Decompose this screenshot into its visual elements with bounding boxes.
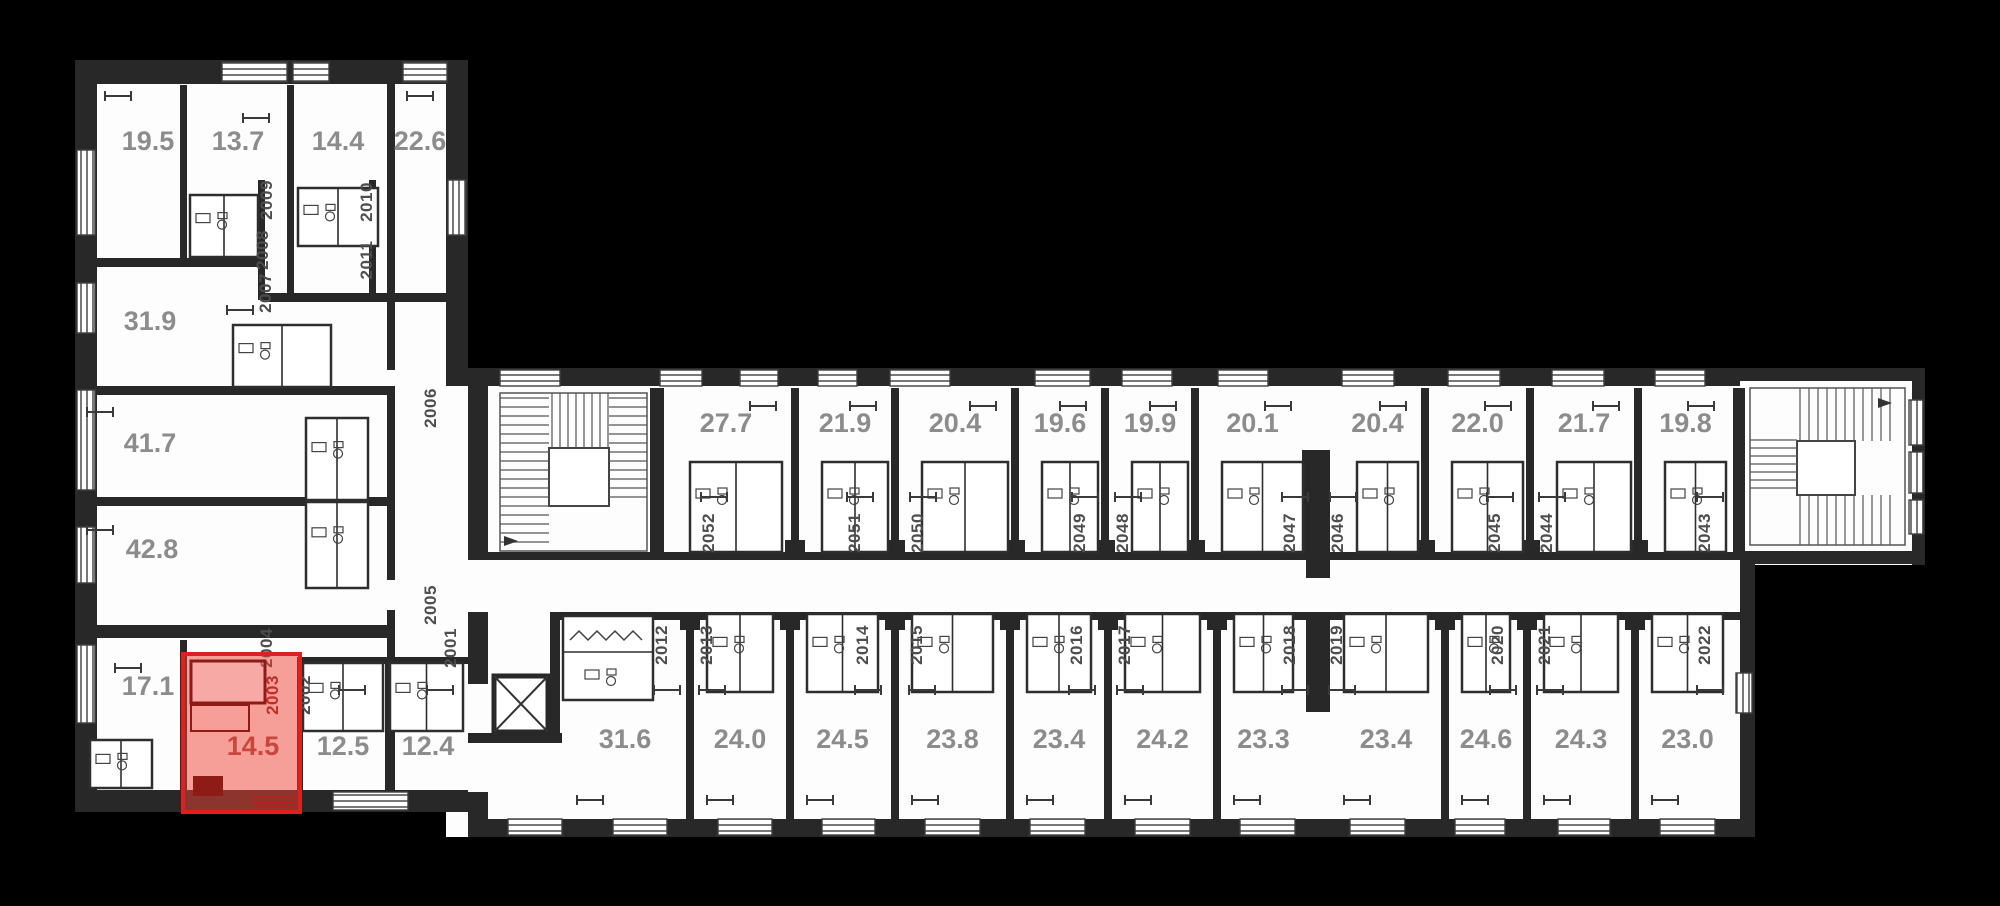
- window: [1448, 370, 1500, 386]
- window: [740, 370, 778, 386]
- elevator-icon: [494, 676, 548, 732]
- unit-number: 2047: [1280, 513, 1299, 553]
- room-area-label: 12.4: [402, 731, 455, 761]
- unit-number: 2013: [697, 625, 716, 665]
- window: [1558, 819, 1610, 835]
- window: [718, 819, 772, 835]
- window: [1660, 819, 1715, 835]
- room-area-label: 41.7: [124, 428, 177, 458]
- window: [333, 792, 408, 810]
- window: [818, 370, 857, 386]
- unit-number: 2022: [1695, 625, 1714, 665]
- window: [822, 819, 875, 835]
- unit-number: 2016: [1067, 625, 1086, 665]
- unit-number: 2011: [357, 241, 376, 280]
- unit-number: 2046: [1328, 513, 1347, 553]
- unit-number: 2051: [845, 513, 864, 553]
- room-area-label: 23.8: [926, 724, 979, 754]
- room-area-label: 19.8: [1659, 408, 1712, 438]
- room-area-label: 23.3: [1237, 724, 1290, 754]
- floor-plan-stage: 19.513.714.422.631.941.742.817.114.512.5…: [0, 0, 2000, 906]
- unit-number: 2006: [421, 388, 440, 428]
- window: [925, 819, 980, 835]
- room-area-label: 24.6: [1460, 724, 1513, 754]
- window: [508, 819, 562, 835]
- room-area-label: 17.1: [122, 671, 175, 701]
- window: [1455, 819, 1505, 835]
- room-area-label: 12.5: [317, 731, 370, 761]
- unit-number: 2050: [908, 513, 927, 553]
- unit-number: 2043: [1695, 513, 1714, 553]
- room-area-label: 19.5: [122, 126, 175, 156]
- window: [500, 370, 560, 386]
- room-area-label: 13.7: [212, 126, 265, 156]
- unit-number: 2014: [853, 625, 872, 665]
- room-area-label: 31.9: [124, 306, 177, 336]
- floor-plan: 19.513.714.422.631.941.742.817.114.512.5…: [0, 0, 2000, 906]
- window: [1218, 370, 1268, 386]
- unit-number: 2048: [1113, 513, 1132, 553]
- room-area-label: 31.6: [599, 724, 652, 754]
- window: [1342, 370, 1394, 386]
- room-area-label: 23.4: [1360, 724, 1413, 754]
- room-area-label: 19.6: [1034, 408, 1087, 438]
- window: [222, 62, 287, 82]
- window: [1909, 400, 1923, 445]
- unit-number: 2018: [1280, 625, 1299, 665]
- window: [1350, 819, 1405, 835]
- window: [1552, 370, 1604, 386]
- unit-number: 2005: [421, 585, 440, 625]
- window: [77, 283, 95, 333]
- window: [890, 370, 950, 386]
- window: [77, 645, 95, 723]
- window: [1909, 500, 1923, 534]
- room-area-label: 21.7: [1558, 408, 1611, 438]
- room-area-label: 20.4: [1351, 408, 1404, 438]
- room-area-label: 22.6: [394, 126, 447, 156]
- room-area-label: 24.0: [714, 724, 767, 754]
- room-area-label: 24.3: [1555, 724, 1608, 754]
- unit-number: 2019: [1327, 625, 1346, 665]
- main-wing-outline: [446, 368, 1740, 837]
- window: [1240, 819, 1295, 835]
- room-area-label: 20.1: [1226, 408, 1279, 438]
- room-area-label: 42.8: [126, 534, 179, 564]
- room-area-label: 27.7: [700, 408, 753, 438]
- unit-number: 2049: [1070, 513, 1089, 553]
- window: [1135, 819, 1190, 835]
- unit-number: 2001: [441, 628, 460, 668]
- window: [660, 370, 702, 386]
- unit-number: 2010: [357, 182, 376, 222]
- unit-number: 2017: [1115, 625, 1134, 665]
- unit-number: 2012: [652, 625, 671, 665]
- unit-number: 2009: [257, 180, 276, 220]
- window: [1736, 673, 1752, 713]
- highlighted-room-2003[interactable]: [183, 654, 300, 812]
- unit-number: 2052: [699, 513, 718, 553]
- window: [1909, 452, 1923, 493]
- window: [403, 62, 447, 82]
- unit-number: 2021: [1535, 625, 1554, 665]
- unit-number: 2007: [256, 273, 275, 313]
- highlight-door-block: [193, 776, 223, 796]
- room-area-label: 24.2: [1136, 724, 1189, 754]
- unit-number: 2044: [1537, 513, 1556, 553]
- window: [1035, 370, 1090, 386]
- window: [1030, 819, 1085, 835]
- unit-number: 2045: [1485, 513, 1504, 553]
- window: [77, 527, 95, 583]
- room-area-label: 22.0: [1451, 408, 1504, 438]
- window: [1655, 370, 1705, 386]
- unit-number: 2020: [1488, 625, 1507, 665]
- room-area-label: 23.4: [1033, 724, 1086, 754]
- room-area-label: 24.5: [816, 724, 869, 754]
- room-area-label: 23.0: [1661, 724, 1714, 754]
- window: [613, 819, 667, 835]
- window: [1122, 370, 1172, 386]
- window: [448, 180, 466, 235]
- room-area-label: 21.9: [819, 408, 872, 438]
- unit-number: 2015: [907, 625, 926, 665]
- window: [77, 390, 95, 490]
- room-area-label: 20.4: [929, 408, 982, 438]
- unit-number: 2008: [253, 230, 272, 270]
- window: [77, 150, 95, 235]
- room-area-label: 19.9: [1124, 408, 1177, 438]
- room-area-label: 14.4: [312, 126, 365, 156]
- window: [293, 62, 329, 82]
